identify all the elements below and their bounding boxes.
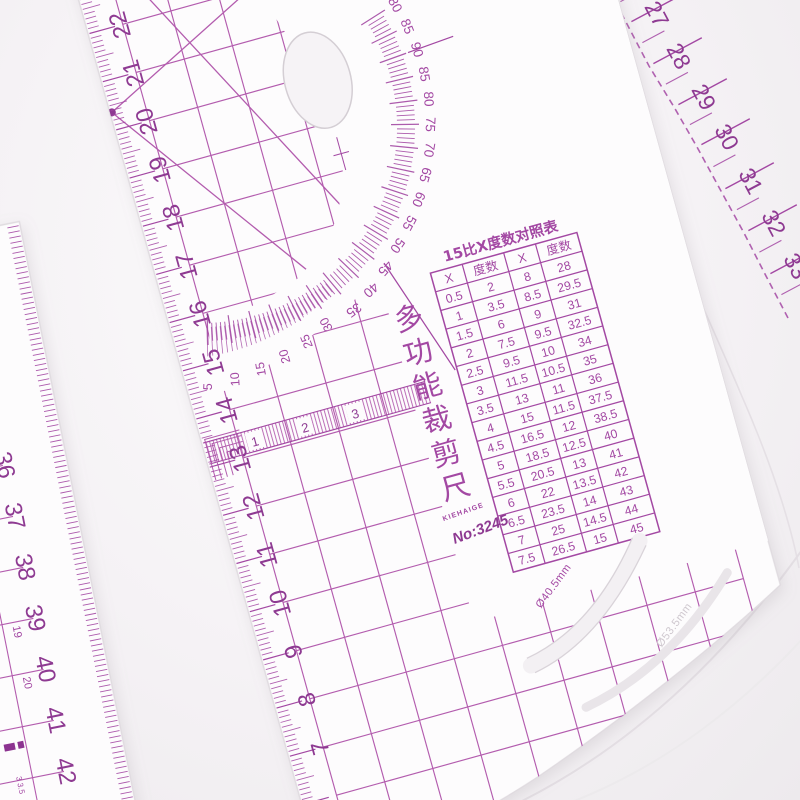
- protractor-number: 15: [253, 361, 269, 377]
- multifunction-ruler: 12378910111213141516171819202122 9085807…: [31, 0, 800, 800]
- edge-number: 40: [29, 653, 61, 684]
- edge-number: 27: [639, 0, 674, 31]
- edge-number: 39: [19, 602, 51, 633]
- inner-number: 20: [20, 676, 34, 690]
- protractor-number: 85: [416, 65, 433, 82]
- edge-number: 33: [778, 249, 800, 284]
- edge-number: 38: [9, 551, 41, 582]
- photo-scene: 27282930313233 363738394041421920 3 3.5 …: [0, 0, 800, 800]
- inner-number: 19: [10, 625, 24, 639]
- protractor-number: 75: [423, 116, 439, 132]
- edge-number: 42: [50, 755, 82, 786]
- protractor-number: 5: [201, 383, 215, 391]
- protractor-number: 10: [228, 372, 243, 387]
- grading-ruler: 363738394041421920 3 3.5: [0, 221, 153, 800]
- edge-number: 37: [0, 500, 30, 531]
- grading-ruler-markings: 363738394041421920: [0, 221, 153, 800]
- protractor-number: 80: [421, 91, 437, 107]
- scene-canvas: 27282930313233 363738394041421920 3 3.5 …: [0, 0, 800, 800]
- protractor-number: 70: [421, 141, 438, 158]
- edge-number: 41: [39, 704, 71, 735]
